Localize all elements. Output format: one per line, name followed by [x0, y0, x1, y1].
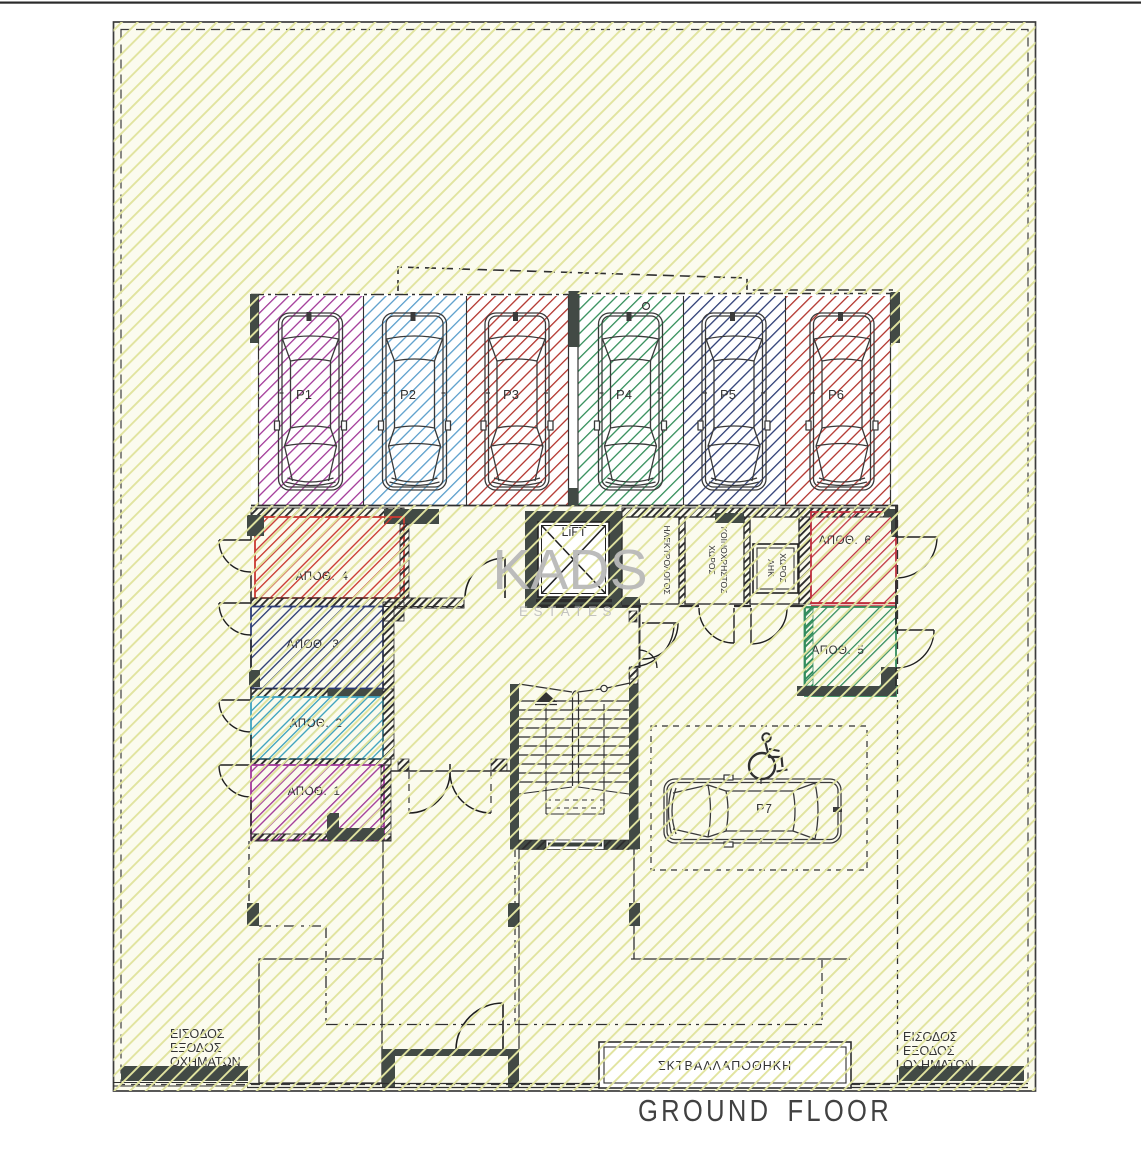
svg-text:P5: P5 — [720, 387, 736, 402]
svg-text:P2: P2 — [400, 387, 416, 402]
svg-text:P4: P4 — [616, 387, 632, 402]
svg-text:P1: P1 — [296, 387, 312, 402]
svg-text:ESTATES: ESTATES — [519, 604, 617, 619]
svg-text:GROUND FLOOR: GROUND FLOOR — [638, 1093, 892, 1128]
svg-text:KADS: KADS — [492, 538, 647, 602]
svg-text:P6: P6 — [828, 387, 844, 402]
svg-text:P3: P3 — [503, 387, 519, 402]
